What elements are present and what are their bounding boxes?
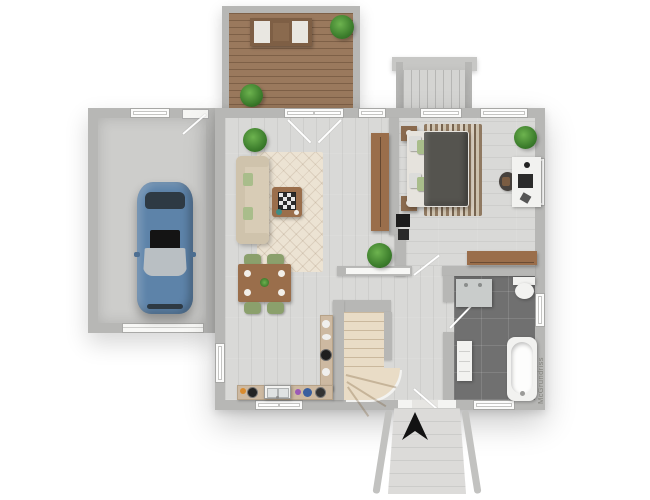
bathroom-right-window bbox=[535, 293, 545, 327]
deck-bench-cushion bbox=[254, 21, 270, 43]
plate bbox=[278, 289, 285, 296]
coffee-cup bbox=[276, 209, 282, 215]
desk-lamp bbox=[524, 162, 530, 168]
car-mirror bbox=[134, 252, 140, 257]
sofa-armrest bbox=[236, 156, 269, 167]
deck-side-table bbox=[273, 23, 289, 41]
cooking-pot bbox=[247, 387, 258, 398]
wall-bathroom-left bbox=[443, 276, 454, 302]
deck bbox=[222, 6, 360, 108]
kitchen-bottom-window bbox=[255, 400, 303, 410]
dresser bbox=[467, 251, 537, 265]
cooking-pot bbox=[303, 388, 312, 397]
hall-open-door-leaf bbox=[345, 267, 411, 275]
monitor bbox=[518, 174, 533, 188]
faucet bbox=[464, 283, 468, 287]
coffee-cup bbox=[294, 210, 299, 215]
exterior-stair-rail bbox=[396, 62, 403, 112]
car-windshield bbox=[143, 248, 187, 276]
floor-plan-canvas: McGrundriss bbox=[0, 0, 650, 500]
kitchen-item bbox=[322, 334, 331, 340]
plate bbox=[244, 289, 251, 296]
exterior-stairs-top bbox=[403, 70, 465, 112]
toilet bbox=[515, 283, 534, 299]
cooking-pot bbox=[320, 349, 332, 361]
bedroom-top-window bbox=[480, 108, 528, 118]
living-top-window bbox=[358, 108, 386, 118]
sofa-back bbox=[236, 156, 245, 244]
coffee-table bbox=[272, 187, 302, 217]
car-rear-window bbox=[145, 192, 185, 209]
tv-console bbox=[398, 229, 409, 240]
cooking-pot bbox=[315, 387, 326, 398]
radiator bbox=[457, 341, 472, 381]
deck-french-door bbox=[284, 108, 344, 118]
wall-tv bbox=[396, 214, 410, 227]
kitchen-left-window bbox=[215, 343, 225, 383]
garage-window bbox=[130, 108, 170, 118]
bathroom-vanity bbox=[456, 279, 492, 307]
wall-bedroom-bathroom bbox=[442, 266, 535, 276]
kitchen-item bbox=[322, 368, 330, 376]
sofa-pillow bbox=[243, 173, 253, 186]
faucet bbox=[276, 396, 279, 399]
entry-steps bbox=[388, 408, 466, 494]
wardrobe bbox=[371, 133, 389, 231]
wall-stair-right bbox=[383, 312, 392, 360]
staircase bbox=[344, 312, 384, 370]
bedroom-top-window bbox=[420, 108, 462, 118]
kitchen-item bbox=[322, 320, 330, 328]
garage-door bbox=[122, 323, 204, 333]
plate bbox=[244, 270, 251, 277]
duvet bbox=[424, 132, 468, 206]
sofa-pillow bbox=[243, 207, 253, 220]
chessboard bbox=[278, 192, 296, 210]
desk bbox=[512, 157, 541, 207]
bedroom-plant-icon bbox=[514, 126, 537, 149]
kitchen-item bbox=[240, 388, 246, 394]
living-plant-icon bbox=[243, 128, 267, 152]
bathtub-basin bbox=[511, 342, 533, 394]
deck-bench-cushion bbox=[292, 21, 308, 43]
deck-plant-icon bbox=[240, 84, 263, 107]
desk-item bbox=[520, 192, 532, 203]
bathtub bbox=[507, 337, 537, 401]
kitchen-sink bbox=[264, 385, 291, 399]
car-grille bbox=[147, 304, 183, 309]
bathtub-faucet bbox=[520, 391, 525, 396]
kitchen-item bbox=[295, 389, 301, 395]
dining-table bbox=[238, 264, 291, 302]
sofa-armrest bbox=[236, 233, 269, 244]
wall-stair-left bbox=[333, 300, 344, 400]
plate bbox=[278, 270, 285, 277]
deck-plant-icon bbox=[330, 15, 354, 39]
dining-chair bbox=[267, 302, 284, 314]
dining-chair bbox=[244, 302, 261, 314]
car bbox=[137, 182, 193, 314]
bathroom-bottom-window bbox=[473, 400, 515, 410]
hall-plant-icon bbox=[367, 243, 392, 268]
faucet bbox=[478, 283, 482, 287]
watermark: McGrundriss bbox=[536, 350, 545, 404]
wall-bathroom-left bbox=[443, 332, 454, 400]
table-plant-icon bbox=[260, 278, 269, 287]
double-bed bbox=[407, 131, 469, 207]
deck-bench bbox=[250, 18, 312, 46]
exterior-stair-rail bbox=[465, 62, 472, 112]
sofa bbox=[236, 156, 269, 244]
car-mirror bbox=[190, 252, 196, 257]
